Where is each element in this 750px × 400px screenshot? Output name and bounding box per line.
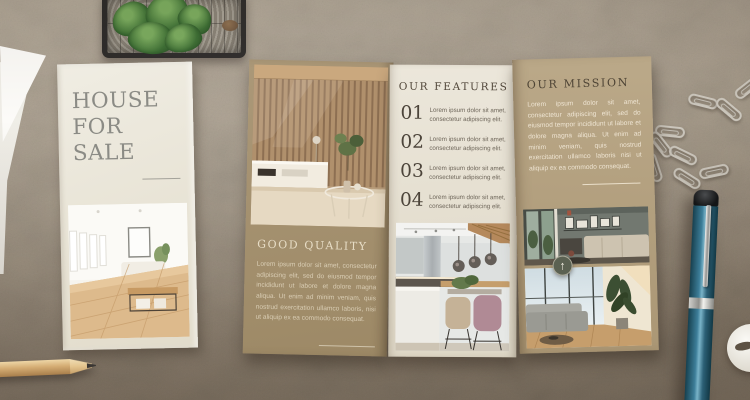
- arrow-up-icon: ↑: [559, 260, 565, 272]
- mission-heading: OUR MISSION: [527, 76, 630, 92]
- soil-pebble: [222, 20, 238, 31]
- desk-scene: HOUSE FOR SALE: [0, 0, 750, 400]
- flyer-title-line: HOUSE: [72, 87, 194, 116]
- features-list: 01 Lorem ipsum dolor sit amet, consectet…: [400, 105, 508, 222]
- divider-line: [582, 183, 640, 186]
- feature-number: 04: [400, 192, 423, 211]
- small-key-shape: [734, 340, 750, 352]
- feature-item: 01 Lorem ipsum dolor sit amet, consectet…: [400, 105, 507, 133]
- bright-living-room-photo: [525, 265, 652, 348]
- pen-barrel: [684, 308, 714, 400]
- feature-text: Lorem ipsum dolor sit amet, consectetur …: [429, 163, 507, 183]
- house-for-sale-flyer: HOUSE FOR SALE: [57, 62, 198, 351]
- mission-body: Lorem ipsum dolor sit amet, consectetur …: [527, 98, 642, 176]
- flyer-title-line: SALE: [73, 139, 195, 168]
- feature-text: Lorem ipsum dolor sit amet, consectetur …: [429, 192, 507, 212]
- feature-item: 02 Lorem ipsum dolor sit amet, consectet…: [400, 134, 507, 162]
- good-quality-body: Lorem ipsum dolor sit amet, consectetur …: [255, 260, 376, 327]
- bright-room-photo: [68, 203, 190, 339]
- feature-text: Lorem ipsum dolor sit amet, consectetur …: [429, 134, 507, 154]
- wood-slat-room-photo: [251, 65, 389, 228]
- kitchen-photo: [395, 223, 510, 352]
- dark-living-room-photo: [523, 206, 649, 265]
- mission-panel: OUR MISSION Lorem ipsum dolor sit amet, …: [512, 56, 659, 354]
- good-quality-panel: GOOD QUALITY Lorem ipsum dolor sit amet,…: [243, 59, 394, 356]
- pen-cap-top: [693, 189, 719, 206]
- feature-item: 03 Lorem ipsum dolor sit amet, consectet…: [400, 163, 507, 191]
- divider-line: [319, 345, 375, 347]
- feature-number: 03: [400, 163, 423, 182]
- features-heading: OUR FEATURES: [390, 81, 518, 94]
- divider-line: [142, 178, 180, 180]
- flyer-title-line: FOR: [72, 113, 194, 142]
- feature-item: 04 Lorem ipsum dolor sit amet, consectet…: [400, 192, 507, 220]
- features-panel: OUR FEATURES 01 Lorem ipsum dolor sit am…: [388, 65, 518, 358]
- feature-number: 01: [400, 105, 423, 124]
- flyer-title: HOUSE FOR SALE: [72, 87, 195, 168]
- feature-number: 02: [400, 134, 423, 153]
- good-quality-heading: GOOD QUALITY: [257, 238, 368, 254]
- feature-text: Lorem ipsum dolor sit amet, consectetur …: [429, 105, 507, 125]
